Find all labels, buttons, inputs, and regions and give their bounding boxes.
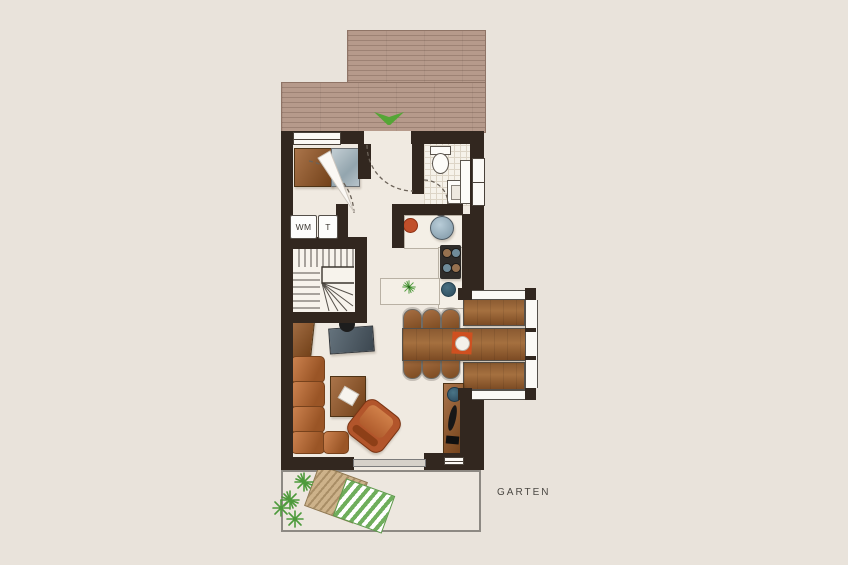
plate xyxy=(455,336,471,352)
bay-mullion xyxy=(525,356,536,360)
l-shaped-sofa-corner xyxy=(323,431,349,454)
dryer: T xyxy=(318,215,338,239)
kitchen-sink xyxy=(430,216,454,240)
wall-stair-bottom xyxy=(290,312,367,323)
sofa-cushion xyxy=(291,381,325,408)
book xyxy=(338,386,360,407)
stove-4-burners xyxy=(440,245,461,279)
decor-sculpture xyxy=(446,405,458,432)
wall-bay-corner-top xyxy=(525,288,536,300)
bay-bench-top xyxy=(463,298,525,326)
garden-label: GARTEN xyxy=(497,487,551,498)
decor-box xyxy=(446,435,460,444)
wall-wardrobe-stub xyxy=(358,144,371,179)
placemat-with-plate xyxy=(451,331,472,354)
winder-staircase xyxy=(293,248,355,312)
kitchen-counter-low xyxy=(380,278,440,305)
burner xyxy=(451,248,461,258)
window-symbol-bottom xyxy=(444,457,464,465)
entrance-door-opening xyxy=(364,131,411,144)
deck-lower xyxy=(281,82,486,133)
washing-machine: WM xyxy=(290,215,317,239)
sofa-cushion xyxy=(291,406,325,433)
wall-left xyxy=(281,131,293,470)
wall-kitchen-h xyxy=(392,204,463,215)
blue-bowl xyxy=(441,282,456,297)
red-bowl xyxy=(403,218,418,233)
wall-kitchen-right xyxy=(462,214,484,294)
burner xyxy=(451,263,461,273)
washing-machine-label: WM xyxy=(296,222,312,232)
dryer-label: T xyxy=(325,222,331,232)
sofa-cushion xyxy=(291,431,325,454)
bay-glazing-top xyxy=(472,290,525,300)
window-symbol-bathroom xyxy=(472,158,485,206)
glass-cabinet xyxy=(331,148,360,187)
wall-bay-stub-top xyxy=(458,288,472,300)
sofa-cushion xyxy=(291,356,325,383)
wardrobe-cabinet xyxy=(294,148,333,187)
toilet xyxy=(432,153,449,174)
wall-bottom-left xyxy=(281,457,354,470)
floor-plan-canvas: GARTEN WM T xyxy=(0,0,848,565)
wall-bathroom-partition xyxy=(412,144,424,194)
sliding-terrace-door xyxy=(353,459,426,467)
window-symbol-top xyxy=(293,132,341,145)
bay-mullion xyxy=(525,328,536,332)
bay-glazing-bottom xyxy=(472,390,525,400)
deck-upper xyxy=(347,30,486,85)
wall-stair-right xyxy=(355,237,367,323)
wall-bay-corner-bottom xyxy=(525,388,536,400)
bay-glazing-right xyxy=(525,300,538,388)
bay-bench-bottom xyxy=(463,362,525,390)
